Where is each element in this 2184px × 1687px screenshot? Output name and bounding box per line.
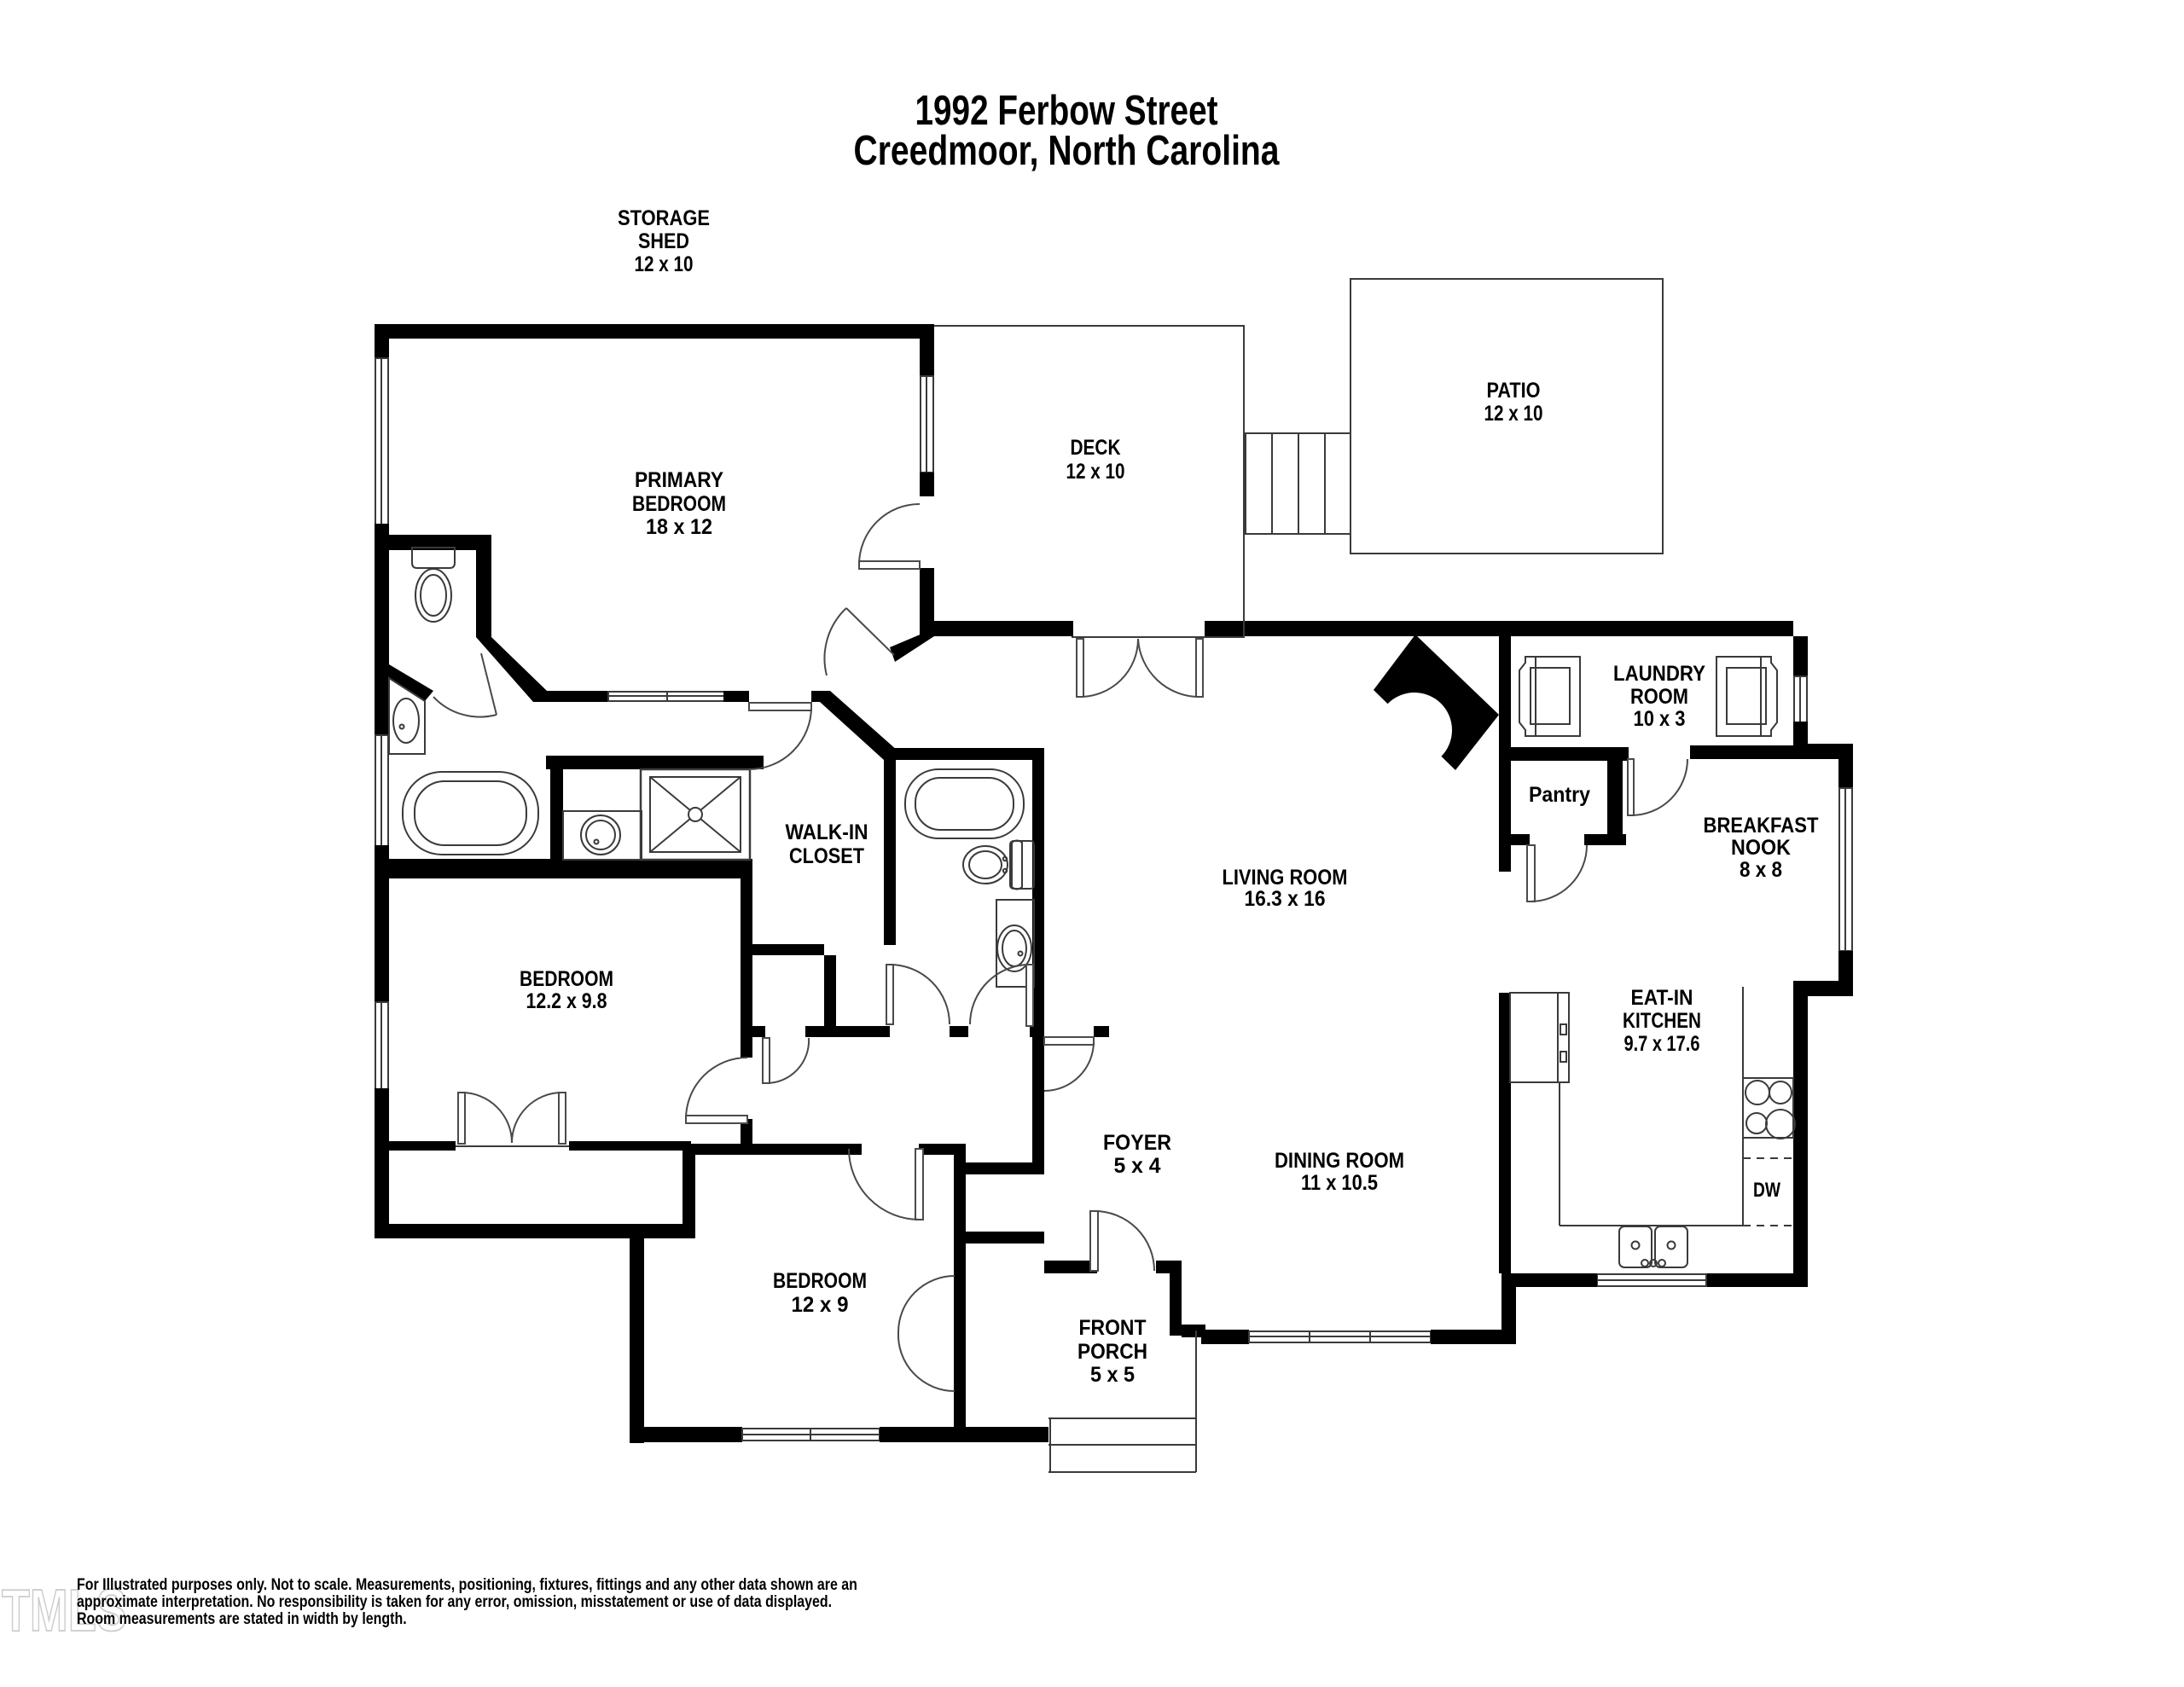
svg-text:12 x 10: 12 x 10: [1484, 402, 1543, 426]
svg-text:8 x 8: 8 x 8: [1740, 858, 1782, 882]
svg-text:DW: DW: [1753, 1179, 1780, 1202]
svg-text:5 x 4: 5 x 4: [1114, 1154, 1161, 1178]
svg-text:1992 Ferbow Street: 1992 Ferbow Street: [915, 88, 1218, 134]
svg-text:Pantry: Pantry: [1529, 783, 1590, 807]
svg-text:LIVING ROOM: LIVING ROOM: [1223, 866, 1348, 890]
svg-text:12 x 10: 12 x 10: [635, 252, 694, 276]
svg-text:Creedmoor, North Carolina: Creedmoor, North Carolina: [854, 128, 1281, 174]
svg-text:DINING ROOM: DINING ROOM: [1275, 1149, 1404, 1173]
svg-text:16.3 x 16: 16.3 x 16: [1245, 887, 1326, 911]
svg-text:LAUNDRY: LAUNDRY: [1613, 662, 1705, 686]
svg-text:9.7 x 17.6: 9.7 x 17.6: [1624, 1032, 1700, 1056]
svg-text:STORAGE: STORAGE: [618, 206, 710, 230]
svg-text:PORCH: PORCH: [1077, 1340, 1147, 1364]
svg-text:WALK-IN: WALK-IN: [786, 820, 868, 844]
svg-text:FRONT: FRONT: [1079, 1316, 1147, 1340]
svg-text:PRIMARY: PRIMARY: [635, 468, 723, 492]
svg-text:SHED: SHED: [638, 229, 689, 253]
svg-text:PATIO: PATIO: [1487, 379, 1541, 403]
svg-text:KITCHEN: KITCHEN: [1623, 1009, 1701, 1033]
svg-text:CLOSET: CLOSET: [789, 844, 864, 868]
svg-text:11 x 10.5: 11 x 10.5: [1301, 1171, 1378, 1195]
svg-text:NOOK: NOOK: [1731, 836, 1791, 860]
svg-text:5 x 5: 5 x 5: [1090, 1363, 1135, 1387]
svg-text:FOYER: FOYER: [1103, 1131, 1171, 1155]
svg-text:BREAKFAST: BREAKFAST: [1704, 814, 1819, 838]
svg-text:BEDROOM: BEDROOM: [520, 967, 613, 991]
svg-text:BEDROOM: BEDROOM: [773, 1269, 867, 1293]
svg-text:12 x 10: 12 x 10: [1066, 460, 1125, 484]
svg-text:18 x 12: 18 x 12: [646, 515, 712, 539]
svg-text:10 x 3: 10 x 3: [1634, 707, 1686, 731]
svg-text:DECK: DECK: [1071, 436, 1121, 460]
svg-text:12.2 x 9.8: 12.2 x 9.8: [526, 989, 607, 1013]
svg-text:BEDROOM: BEDROOM: [632, 492, 726, 516]
svg-text:EAT-IN: EAT-IN: [1631, 986, 1693, 1010]
svg-text:12 x 9: 12 x 9: [792, 1293, 849, 1317]
svg-text:ROOM: ROOM: [1630, 685, 1688, 709]
